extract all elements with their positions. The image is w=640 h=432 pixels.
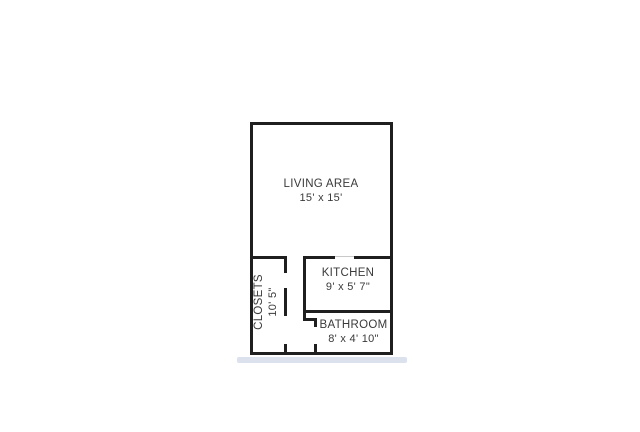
kitchen-bathroom-divider [303, 310, 393, 313]
kitchen-door-opening [335, 256, 354, 257]
bathroom-label: BATHROOM [317, 318, 390, 332]
room-kitchen: KITCHEN 9' x 5' 7" [306, 266, 390, 294]
closet-wall-mid-segment [284, 288, 287, 316]
outer-wall-top [250, 122, 393, 125]
kitchen-label: KITCHEN [306, 266, 390, 280]
bathroom-dimensions: 8' x 4' 10" [317, 332, 390, 346]
closets-label: CLOSETS [252, 262, 266, 342]
living-bottom-wall-left-segment [250, 256, 287, 259]
closets-dimensions: 10' 5" [266, 262, 280, 342]
outer-wall-right [390, 122, 393, 355]
closet-wall-top-stub [284, 256, 287, 273]
room-living-area: LIVING AREA 15' x 15' [251, 177, 391, 205]
plan-drop-shadow [237, 357, 407, 363]
living-bottom-wall-right-segment [354, 256, 393, 259]
outer-wall-bottom [250, 352, 393, 355]
closet-wall-bottom-stub [284, 344, 287, 355]
living-area-label: LIVING AREA [251, 177, 391, 191]
room-bathroom: BATHROOM 8' x 4' 10" [317, 318, 390, 346]
living-bottom-wall-middle-segment [303, 256, 335, 259]
living-area-dimensions: 15' x 15' [251, 191, 391, 205]
room-closets: CLOSETS 10' 5" [252, 262, 280, 342]
floor-plan: LIVING AREA 15' x 15' KITCHEN 9' x 5' 7"… [0, 0, 640, 432]
kitchen-dimensions: 9' x 5' 7" [306, 280, 390, 294]
